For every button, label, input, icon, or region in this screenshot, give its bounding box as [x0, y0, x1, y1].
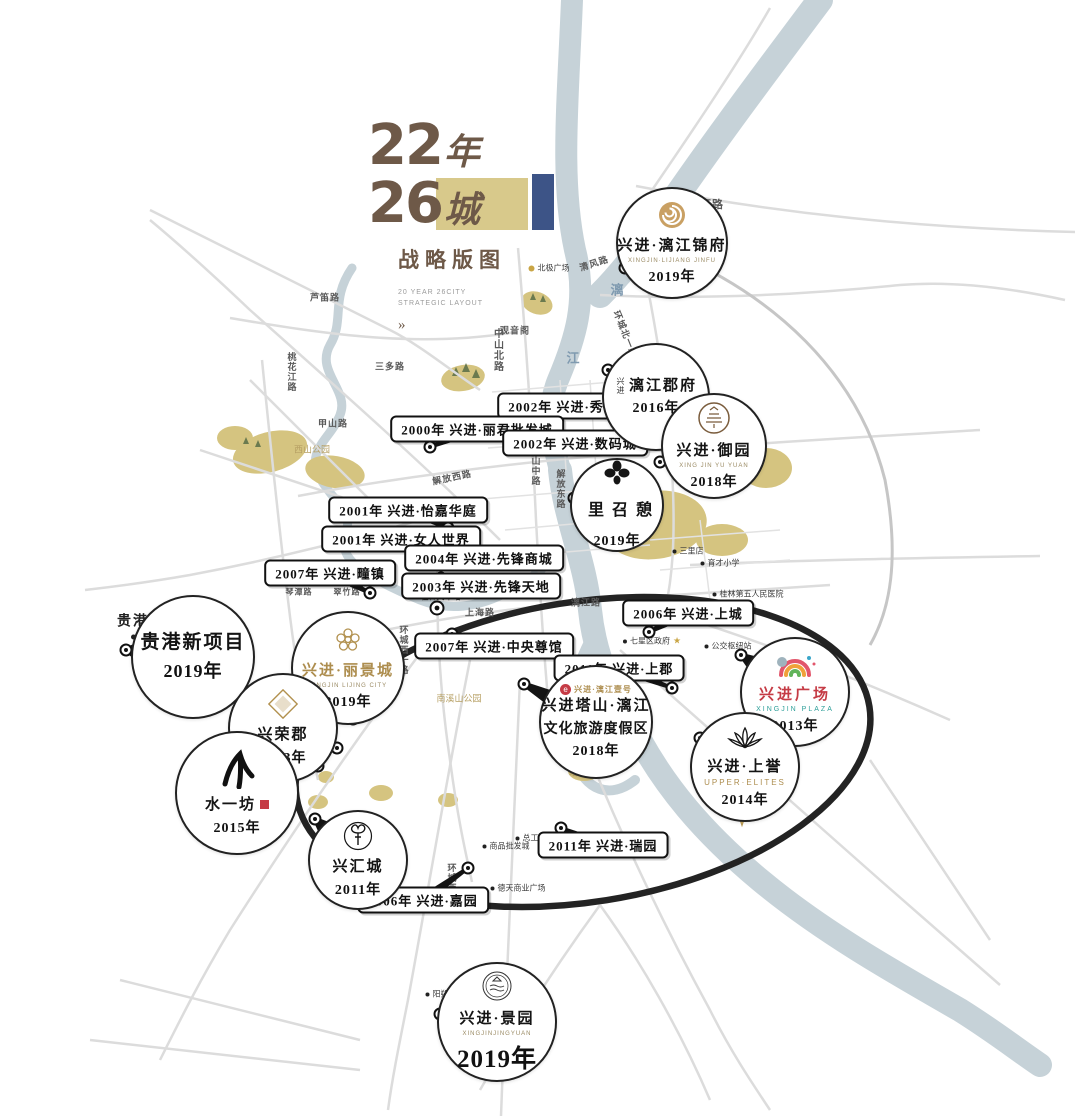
project-year-label: 2006年 兴进·上城 — [622, 600, 754, 627]
project-badge-shangyu: 兴进·上誉UPPER·ELITES2014年 — [690, 712, 800, 822]
title-number-26: 26 — [368, 171, 442, 236]
navy-accent-bar — [532, 174, 554, 230]
train-station-icon — [431, 602, 444, 615]
project-logo-icon: e兴进·漓江壹号 — [560, 684, 632, 695]
project-year: 2019年 — [594, 530, 641, 550]
poi-text: 德天商业广场 — [498, 883, 546, 894]
road-label: 甲山路 — [318, 417, 348, 430]
project-subtitle: XINGJIN·LIJIANG JINFU — [628, 258, 716, 264]
title-unit-year: 年 — [444, 132, 480, 172]
poi-dot-icon — [623, 639, 627, 643]
poi-text: 商品批发城 — [490, 841, 530, 852]
project-badge-shuiyifang: 水一坊2015年 — [175, 731, 299, 855]
project-year: 2019年 — [457, 1039, 537, 1075]
poi-text: 三里店 — [680, 546, 704, 557]
poi-text: 公交枢纽站 — [712, 641, 752, 652]
title-subtitle: 战略版图 — [398, 244, 506, 274]
river-label: 江 — [566, 348, 579, 367]
road-label: 上海路 — [465, 606, 495, 619]
rainbow-logo-icon — [772, 649, 818, 684]
title-english-line1: 20 YEAR 26CITY — [398, 288, 506, 299]
brush-logo-icon — [209, 749, 265, 794]
poi-dot-icon — [673, 549, 677, 553]
project-name-row: 兴进漓江郡府 — [615, 377, 697, 396]
project-year-label: 2004年 兴进·先锋商城 — [404, 545, 564, 572]
project-year: 2018年 — [573, 740, 620, 760]
project-year: 2018年 — [691, 471, 738, 491]
project-name: 兴进·漓江锦府 — [618, 237, 727, 256]
poi-dot-icon — [491, 886, 495, 890]
project-name: 兴进塔山·漓江 — [541, 697, 650, 716]
park-label: 西山公园 — [294, 443, 330, 456]
road-label: 解放东路 — [555, 469, 568, 509]
clover-logo-icon — [604, 460, 630, 491]
project-year-label: 2007年 兴进·疃镇 — [264, 560, 396, 587]
project-subtitle: UPPER·ELITES — [704, 778, 786, 787]
flower-logo-icon — [333, 625, 363, 660]
swirl-logo-icon — [657, 200, 687, 235]
seal-logo-icon — [697, 401, 731, 440]
strategic-map-poster: N 22年 26城 战略版图 20 YEAR 26CITY STRATEGIC … — [0, 0, 1080, 1116]
poi-label: 桂林第五人民医院 — [713, 589, 784, 600]
project-year-label: 2007年 兴进·中央尊馆 — [414, 633, 574, 660]
poi-label: 德天商业广场 — [491, 883, 546, 894]
project-name: 贵港新项目 — [140, 631, 245, 655]
poi-label: 育才小学 — [701, 558, 740, 569]
project-name-line2: 文化旅游度假区 — [544, 718, 649, 738]
poi-text: 育才小学 — [708, 558, 740, 569]
poi-label: 商品批发城 — [483, 841, 530, 852]
project-year-label: 2003年 兴进·先锋天地 — [401, 573, 561, 600]
star-icon: ★ — [673, 636, 681, 647]
project-name: 兴进·御园 — [676, 442, 751, 461]
project-badge-xinghuicheng: 兴汇城2011年 — [308, 810, 408, 910]
emblem-logo-icon — [480, 969, 514, 1008]
title-line-2: 26城 — [368, 176, 506, 234]
poi-label: 北极广场 — [529, 263, 570, 274]
project-badge-tashan: e兴进·漓江壹号兴进塔山·漓江文化旅游度假区2018年 — [539, 665, 653, 779]
poi-dot-icon — [529, 265, 535, 271]
road-label: 漓江路 — [571, 596, 601, 609]
project-name: 兴进广场 — [759, 686, 831, 705]
poi-text: 桂林第五人民医院 — [720, 589, 784, 600]
project-subtitle: XINGJIN PLAZA — [756, 706, 834, 713]
project-name: 漓江郡府 — [629, 377, 697, 396]
poi-label: 公交枢纽站 — [705, 641, 752, 652]
road-label: 芦笛路 — [310, 291, 340, 304]
poi-dot-icon — [426, 992, 430, 996]
river-label: 漓 — [610, 280, 623, 299]
project-year: 2019年 — [649, 266, 696, 286]
title-english-line2: STRATEGIC LAYOUT — [398, 299, 506, 310]
title-unit-city: 城 — [444, 190, 480, 230]
project-name: 憩召里 — [581, 493, 653, 528]
poi-dot-icon — [483, 844, 487, 848]
road-label: 桃花江路 — [286, 352, 299, 392]
project-subtitle: XINGJINJINGYUAN — [462, 1031, 531, 1037]
project-year: 2015年 — [214, 817, 261, 837]
project-name: 兴进·丽景城 — [302, 662, 394, 681]
project-name: 水一坊 — [205, 796, 269, 815]
title-english-caption: 20 YEAR 26CITY STRATEGIC LAYOUT — [398, 288, 506, 309]
project-name: 兴进·上誉 — [707, 758, 782, 777]
project-badge-lijiang-jinfu: 兴进·漓江锦府XINGJIN·LIJIANG JINFU2019年 — [616, 187, 728, 299]
project-year: 2011年 — [335, 879, 381, 899]
poi-label: 三里店 — [673, 546, 704, 557]
project-subtitle: XING JIN YU YUAN — [679, 463, 748, 469]
project-badge-jingyuan: 兴进·景园XINGJINJINGYUAN2019年 — [437, 962, 557, 1082]
tree-logo-icon — [343, 821, 373, 856]
poi-dot-icon — [713, 592, 717, 596]
diamond-logo-icon — [268, 689, 298, 724]
title-chevrons: » — [398, 317, 506, 334]
title-number-22: 22 — [368, 113, 442, 178]
project-year-label: 2001年 兴进·怡嘉华庭 — [328, 497, 488, 524]
poster-title: 22年 26城 战略版图 20 YEAR 26CITY STRATEGIC LA… — [368, 118, 506, 334]
poi-label: 七星区政府★ — [623, 636, 681, 647]
poi-dot-icon — [701, 561, 705, 565]
road-label: 三多路 — [375, 360, 405, 373]
project-badge-yuyuan: 兴进·御园XING JIN YU YUAN2018年 — [661, 393, 767, 499]
project-name: 兴进·景园 — [459, 1010, 534, 1029]
road-label: 琴潭路 — [286, 587, 313, 598]
project-badge-qizhaoli: 憩召里2019年 — [570, 458, 664, 552]
red-seal-icon — [260, 800, 269, 809]
title-line-1: 22年 — [368, 118, 506, 176]
poi-text: 七星区政府 — [630, 636, 670, 647]
project-year: 2019年 — [164, 657, 223, 683]
park-label: 南溪山公园 — [436, 692, 481, 705]
poi-dot-icon — [705, 644, 709, 648]
project-year: 2014年 — [722, 789, 769, 809]
poi-text: 北极广场 — [538, 263, 570, 274]
brand-prefix: 兴进 — [615, 377, 626, 395]
lotus-logo-icon — [725, 725, 765, 756]
project-name: 兴汇城 — [332, 858, 383, 877]
project-year-label: 2011年 兴进·瑞园 — [538, 832, 669, 859]
road-label: 翠竹路 — [334, 587, 361, 598]
poi-dot-icon — [516, 836, 520, 840]
